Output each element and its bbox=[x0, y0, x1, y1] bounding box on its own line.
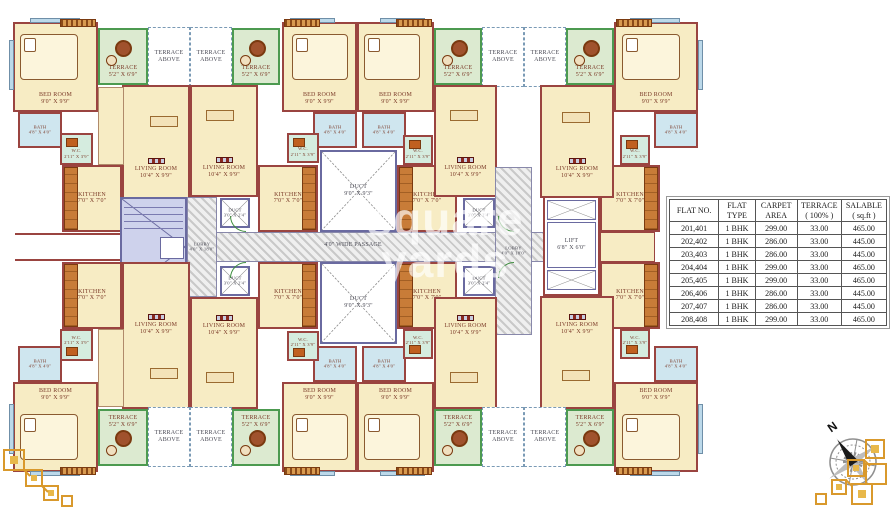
bath-u8: BATH 4'8" X 4'0" bbox=[654, 346, 698, 382]
bath-u4: BATH 4'8" X 4'0" bbox=[654, 112, 698, 148]
living-tag: LIVING ROOM 10'4" X 9'9" bbox=[192, 315, 256, 337]
duct-large-top: DUCT 9'0" X 9'3" bbox=[320, 150, 397, 232]
table-row: 205,4051 BHK299.0033.00465.00 bbox=[670, 274, 887, 287]
duct-large-bottom: DUCT 9'0" X 9'3" bbox=[320, 262, 397, 344]
bath-u2: BATH 4'8" X 4'0" bbox=[313, 112, 357, 148]
flat-table: FLAT NO. FLAT TYPE CARPET AREA TERRACE (… bbox=[669, 199, 887, 326]
bath-label: BATH 4'8" X 4'0" bbox=[20, 359, 60, 370]
lobby-label: LOBBY 4'0" X 18'0" bbox=[188, 242, 216, 253]
bedroom-label: BED ROOM 9'0" X 9'9" bbox=[616, 92, 696, 106]
table-cell: 286.00 bbox=[755, 300, 797, 313]
lift-cab: LIFT 6'8" X 6'0" bbox=[547, 222, 596, 268]
bed-icon bbox=[292, 34, 348, 80]
window-grill bbox=[396, 467, 432, 475]
col-terrace: TERRACE ( 100% ) bbox=[797, 200, 841, 222]
kitchen-counter bbox=[64, 264, 78, 327]
wc-fixture-icon bbox=[66, 138, 78, 147]
terrace-label: TERRACE 5'2" X 6'9" bbox=[100, 415, 146, 429]
bed-icon bbox=[20, 34, 78, 80]
patio-table-icon bbox=[574, 40, 600, 68]
kitchen-counter bbox=[644, 264, 658, 327]
sofa-icon bbox=[206, 372, 234, 383]
table-cell: 33.00 bbox=[797, 300, 841, 313]
table-row: 203,4031 BHK286.0033.00445.00 bbox=[670, 248, 887, 261]
wc-label: W.C. 2'11" X 3'9" bbox=[289, 337, 317, 348]
window-grill bbox=[616, 467, 652, 475]
corner-ornament-right bbox=[808, 436, 890, 508]
window-grill bbox=[284, 19, 320, 27]
sofa-icon bbox=[562, 370, 590, 381]
wc-label: W.C. 2'11" X 3'9" bbox=[405, 335, 431, 346]
terrace-label: TERRACE 5'2" X 6'9" bbox=[568, 415, 612, 429]
entry-strip bbox=[600, 232, 655, 262]
stair-landing bbox=[160, 237, 184, 259]
wc-fixture-icon bbox=[409, 345, 421, 354]
wc-u8: W.C. 2'11" X 3'9" bbox=[620, 329, 650, 359]
wc-u7: W.C. 2'11" X 3'9" bbox=[403, 329, 433, 359]
table-cell: 445.00 bbox=[841, 235, 886, 248]
wc-label: W.C. 2'11" X 3'9" bbox=[622, 148, 648, 159]
living-tag: LIVING ROOM 10'4" X 9'9" bbox=[436, 315, 495, 337]
living-room-u6: LIVING ROOM 10'4" X 9'9" bbox=[190, 297, 258, 409]
table-cell: 299.00 bbox=[755, 261, 797, 274]
sofa-icon bbox=[206, 110, 234, 121]
terrace-above-label: TERRACE ABOVE bbox=[525, 430, 565, 444]
patio-table-icon bbox=[442, 40, 468, 68]
patio-table-icon bbox=[442, 430, 468, 458]
wc-label: W.C. 2'11" X 3'9" bbox=[405, 148, 431, 159]
lobby-right: LOBBY 4'0" X 18'0" bbox=[495, 167, 532, 335]
lift-label: LIFT 6'8" X 6'0" bbox=[548, 238, 595, 252]
wc-label: W.C. 2'11" X 3'9" bbox=[62, 148, 91, 159]
bed-icon bbox=[364, 414, 420, 460]
terrace-label: TERRACE 5'2" X 6'9" bbox=[234, 415, 278, 429]
table-cell: 1 BHK bbox=[719, 235, 755, 248]
col-carpet-area: CARPET AREA bbox=[755, 200, 797, 222]
bath-u7: BATH 4'8" X 4'0" bbox=[362, 346, 406, 382]
sofa-icon bbox=[450, 372, 478, 383]
bath-label: BATH 4'8" X 4'0" bbox=[364, 359, 404, 370]
living-room-u7: LIVING ROOM 10'4" X 9'9" bbox=[434, 297, 497, 409]
stair-steps bbox=[124, 201, 183, 229]
table-cell: 299.00 bbox=[755, 274, 797, 287]
sofa-icon bbox=[150, 368, 178, 379]
sofa-icon bbox=[150, 116, 178, 127]
table-cell: 33.00 bbox=[797, 274, 841, 287]
bath-label: BATH 4'8" X 4'0" bbox=[656, 125, 696, 136]
lobby-left: LOBBY 4'0" X 18'0" bbox=[187, 197, 217, 297]
terrace-above-area: TERRACE ABOVE bbox=[482, 407, 524, 467]
bath-u1: BATH 4'8" X 4'0" bbox=[18, 112, 62, 148]
lift-shaft: LIFT 6'8" X 6'0" bbox=[543, 196, 600, 296]
table-cell: 33.00 bbox=[797, 222, 841, 235]
terrace-above-area: TERRACE ABOVE bbox=[190, 407, 232, 467]
window-grill bbox=[616, 19, 652, 27]
living-room-u3: LIVING ROOM 10'4" X 9'9" bbox=[434, 85, 497, 197]
terrace-label: TERRACE 5'2" X 6'9" bbox=[436, 415, 480, 429]
table-cell: 33.00 bbox=[797, 287, 841, 300]
bath-label: BATH 4'8" X 4'0" bbox=[364, 125, 404, 136]
bedroom-label: BED ROOM 9'0" X 9'9" bbox=[284, 92, 355, 106]
living-room-label: LIVING ROOM 10'4" X 9'9" bbox=[556, 322, 598, 336]
table-cell: 445.00 bbox=[841, 300, 886, 313]
patio-table-icon bbox=[574, 430, 600, 458]
living-room-label: LIVING ROOM 10'4" X 9'9" bbox=[135, 166, 177, 180]
door-arc bbox=[230, 216, 246, 232]
wc-fixture-icon bbox=[626, 345, 638, 354]
wc-label: W.C. 2'11" X 3'9" bbox=[622, 335, 648, 346]
flat-number-badge bbox=[457, 157, 474, 163]
terrace-above-label: TERRACE ABOVE bbox=[191, 430, 231, 444]
bath-label: BATH 4'8" X 4'0" bbox=[20, 125, 60, 136]
wc-label: W.C. 2'11" X 3'9" bbox=[289, 146, 317, 157]
flat-number-badge bbox=[457, 315, 474, 321]
living-room-label: LIVING ROOM 10'4" X 9'9" bbox=[444, 323, 486, 337]
table-cell: 465.00 bbox=[841, 222, 886, 235]
wc-fixture-icon bbox=[626, 140, 638, 149]
table-cell: 1 BHK bbox=[719, 313, 755, 326]
patio-table-icon bbox=[106, 430, 132, 458]
window-grill bbox=[284, 467, 320, 475]
table-cell: 1 BHK bbox=[719, 300, 755, 313]
bedroom-label: BED ROOM 9'0" X 9'9" bbox=[359, 92, 432, 106]
lift-duct bbox=[547, 270, 596, 290]
living-room-label: LIVING ROOM 10'4" X 9'9" bbox=[556, 166, 598, 180]
table-cell: 33.00 bbox=[797, 235, 841, 248]
bedroom-label: BED ROOM 9'0" X 9'9" bbox=[284, 388, 355, 402]
lobby-label: LOBBY 4'0" X 18'0" bbox=[496, 246, 531, 257]
flat-number-badge bbox=[216, 157, 233, 163]
passage: 4'0" WIDE PASSAGE bbox=[187, 232, 545, 262]
wc-u5: W.C. 2'11" X 3'9" bbox=[60, 329, 93, 361]
terrace-above-area: TERRACE ABOVE bbox=[524, 407, 566, 467]
kitchen-counter bbox=[302, 167, 316, 230]
terrace-above-label: TERRACE ABOVE bbox=[483, 50, 523, 64]
patio-table-icon bbox=[240, 430, 266, 458]
table-cell: 1 BHK bbox=[719, 248, 755, 261]
hall-area bbox=[98, 329, 124, 407]
col-flat-type: FLAT TYPE bbox=[719, 200, 755, 222]
table-cell: 299.00 bbox=[755, 313, 797, 326]
bedroom-label: BED ROOM 9'0" X 9'9" bbox=[359, 388, 432, 402]
table-cell: 465.00 bbox=[841, 274, 886, 287]
bed-icon bbox=[622, 414, 680, 460]
bed-icon bbox=[292, 414, 348, 460]
flat-number-badge bbox=[216, 315, 233, 321]
table-row: 204,4041 BHK299.0033.00465.00 bbox=[670, 261, 887, 274]
terrace-above-label: TERRACE ABOVE bbox=[149, 50, 189, 64]
lift-duct bbox=[547, 200, 596, 220]
flat-number-badge bbox=[148, 158, 165, 164]
table-row: 207,4071 BHK286.0033.00445.00 bbox=[670, 300, 887, 313]
table-row: 208,4081 BHK299.0033.00465.00 bbox=[670, 313, 887, 326]
table-cell: 299.00 bbox=[755, 222, 797, 235]
living-room-u2: LIVING ROOM 10'4" X 9'9" bbox=[190, 85, 258, 197]
table-cell: 286.00 bbox=[755, 287, 797, 300]
table-cell: 205,405 bbox=[670, 274, 719, 287]
bed-icon bbox=[622, 34, 680, 80]
table-cell: 1 BHK bbox=[719, 261, 755, 274]
table-cell: 286.00 bbox=[755, 248, 797, 261]
table-cell: 465.00 bbox=[841, 261, 886, 274]
living-room-label: LIVING ROOM 10'4" X 9'9" bbox=[203, 323, 245, 337]
table-cell: 33.00 bbox=[797, 261, 841, 274]
table-cell: 33.00 bbox=[797, 313, 841, 326]
window-strip bbox=[9, 40, 14, 90]
kitchen-counter bbox=[302, 264, 316, 327]
corner-ornament-left bbox=[0, 446, 100, 508]
terrace-above-area: TERRACE ABOVE bbox=[482, 27, 524, 87]
table-cell: 201,401 bbox=[670, 222, 719, 235]
kitchen-counter bbox=[399, 167, 413, 230]
flat-table-body: 201,4011 BHK299.0033.00465.00202,4021 BH… bbox=[670, 222, 887, 326]
patio-table-icon bbox=[240, 40, 266, 68]
bath-u6: BATH 4'8" X 4'0" bbox=[313, 346, 357, 382]
living-tag: LIVING ROOM 10'4" X 9'9" bbox=[542, 314, 612, 336]
table-cell: 445.00 bbox=[841, 248, 886, 261]
table-cell: 206,406 bbox=[670, 287, 719, 300]
hall-area bbox=[98, 87, 124, 165]
table-cell: 465.00 bbox=[841, 313, 886, 326]
table-cell: 1 BHK bbox=[719, 222, 755, 235]
living-tag: LIVING ROOM 10'4" X 9'9" bbox=[124, 314, 188, 336]
table-row: 206,4061 BHK286.0033.00445.00 bbox=[670, 287, 887, 300]
bed-icon bbox=[364, 34, 420, 80]
sofa-icon bbox=[562, 112, 590, 123]
terrace-above-area: TERRACE ABOVE bbox=[524, 27, 566, 87]
wc-fixture-icon bbox=[66, 347, 78, 356]
wc-fixture-icon bbox=[409, 140, 421, 149]
table-row: 202,4021 BHK286.0033.00445.00 bbox=[670, 235, 887, 248]
table-cell: 1 BHK bbox=[719, 287, 755, 300]
table-cell: 445.00 bbox=[841, 287, 886, 300]
table-cell: 208,408 bbox=[670, 313, 719, 326]
wc-label: W.C. 2'11" X 3'9" bbox=[62, 335, 91, 346]
duct-small: DUCT 3'0" X 2'4" bbox=[463, 198, 495, 228]
sofa-icon bbox=[450, 110, 478, 121]
table-header-row: FLAT NO. FLAT TYPE CARPET AREA TERRACE (… bbox=[670, 200, 887, 222]
wc-fixture-icon bbox=[293, 348, 305, 357]
passage-label: 4'0" WIDE PASSAGE bbox=[288, 242, 418, 249]
table-cell: 202,402 bbox=[670, 235, 719, 248]
living-tag: LIVING ROOM 10'4" X 9'9" bbox=[436, 157, 495, 179]
table-cell: 203,403 bbox=[670, 248, 719, 261]
living-room-label: LIVING ROOM 10'4" X 9'9" bbox=[203, 165, 245, 179]
col-salable: SALABLE ( sq.ft ) bbox=[841, 200, 886, 222]
open-strip bbox=[15, 233, 120, 261]
terrace-above-label: TERRACE ABOVE bbox=[149, 430, 189, 444]
flat-number-badge bbox=[569, 314, 586, 320]
terrace-above-area: TERRACE ABOVE bbox=[190, 27, 232, 87]
window-strip bbox=[698, 404, 703, 454]
floor-plan-sheet: TERRACE 5'2" X 6'9" TERRACE 5'2" X 6'9" … bbox=[0, 0, 890, 508]
table-cell: 207,407 bbox=[670, 300, 719, 313]
living-room-u5: LIVING ROOM 10'4" X 9'9" bbox=[122, 262, 190, 409]
table-cell: 33.00 bbox=[797, 248, 841, 261]
col-flat-no: FLAT NO. bbox=[670, 200, 719, 222]
bath-label: BATH 4'8" X 4'0" bbox=[315, 359, 355, 370]
table-cell: 204,404 bbox=[670, 261, 719, 274]
terrace-above-area: TERRACE ABOVE bbox=[148, 407, 190, 467]
table-cell: 1 BHK bbox=[719, 274, 755, 287]
flat-table-wrap: FLAT NO. FLAT TYPE CARPET AREA TERRACE (… bbox=[666, 196, 890, 329]
bedroom-label: BED ROOM 9'0" X 9'9" bbox=[616, 388, 696, 402]
bath-label: BATH 4'8" X 4'0" bbox=[656, 359, 696, 370]
kitchen-counter bbox=[64, 167, 78, 230]
living-tag: LIVING ROOM 10'4" X 9'9" bbox=[542, 158, 612, 180]
flat-number-badge bbox=[148, 314, 165, 320]
window-strip bbox=[698, 40, 703, 90]
duct-small: DUCT 3'0" X 2'4" bbox=[463, 266, 495, 296]
table-row: 201,4011 BHK299.0033.00465.00 bbox=[670, 222, 887, 235]
bath-u3: BATH 4'8" X 4'0" bbox=[362, 112, 406, 148]
bath-label: BATH 4'8" X 4'0" bbox=[315, 125, 355, 136]
terrace-above-label: TERRACE ABOVE bbox=[483, 430, 523, 444]
living-room-u4: LIVING ROOM 10'4" X 9'9" bbox=[540, 85, 614, 198]
wc-fixture-icon bbox=[293, 138, 305, 147]
window-grill bbox=[60, 19, 96, 27]
patio-table-icon bbox=[106, 40, 132, 68]
living-room-label: LIVING ROOM 10'4" X 9'9" bbox=[135, 322, 177, 336]
living-tag: LIVING ROOM 10'4" X 9'9" bbox=[192, 157, 256, 179]
kitchen-counter bbox=[399, 264, 413, 327]
bedroom-label: BED ROOM 9'0" X 9'9" bbox=[15, 92, 96, 106]
window-grill bbox=[396, 19, 432, 27]
bedroom-label: BED ROOM 9'0" X 9'9" bbox=[15, 388, 96, 402]
living-tag: LIVING ROOM 10'4" X 9'9" bbox=[124, 158, 188, 180]
bath-u5: BATH 4'8" X 4'0" bbox=[18, 346, 62, 382]
kitchen-counter bbox=[644, 167, 658, 230]
door-arc bbox=[230, 262, 246, 278]
flat-number-badge bbox=[569, 158, 586, 164]
terrace-above-label: TERRACE ABOVE bbox=[191, 50, 231, 64]
table-cell: 286.00 bbox=[755, 235, 797, 248]
living-room-u8: LIVING ROOM 10'4" X 9'9" bbox=[540, 296, 614, 409]
living-room-label: LIVING ROOM 10'4" X 9'9" bbox=[444, 165, 486, 179]
terrace-above-label: TERRACE ABOVE bbox=[525, 50, 565, 64]
terrace-above-area: TERRACE ABOVE bbox=[148, 27, 190, 87]
